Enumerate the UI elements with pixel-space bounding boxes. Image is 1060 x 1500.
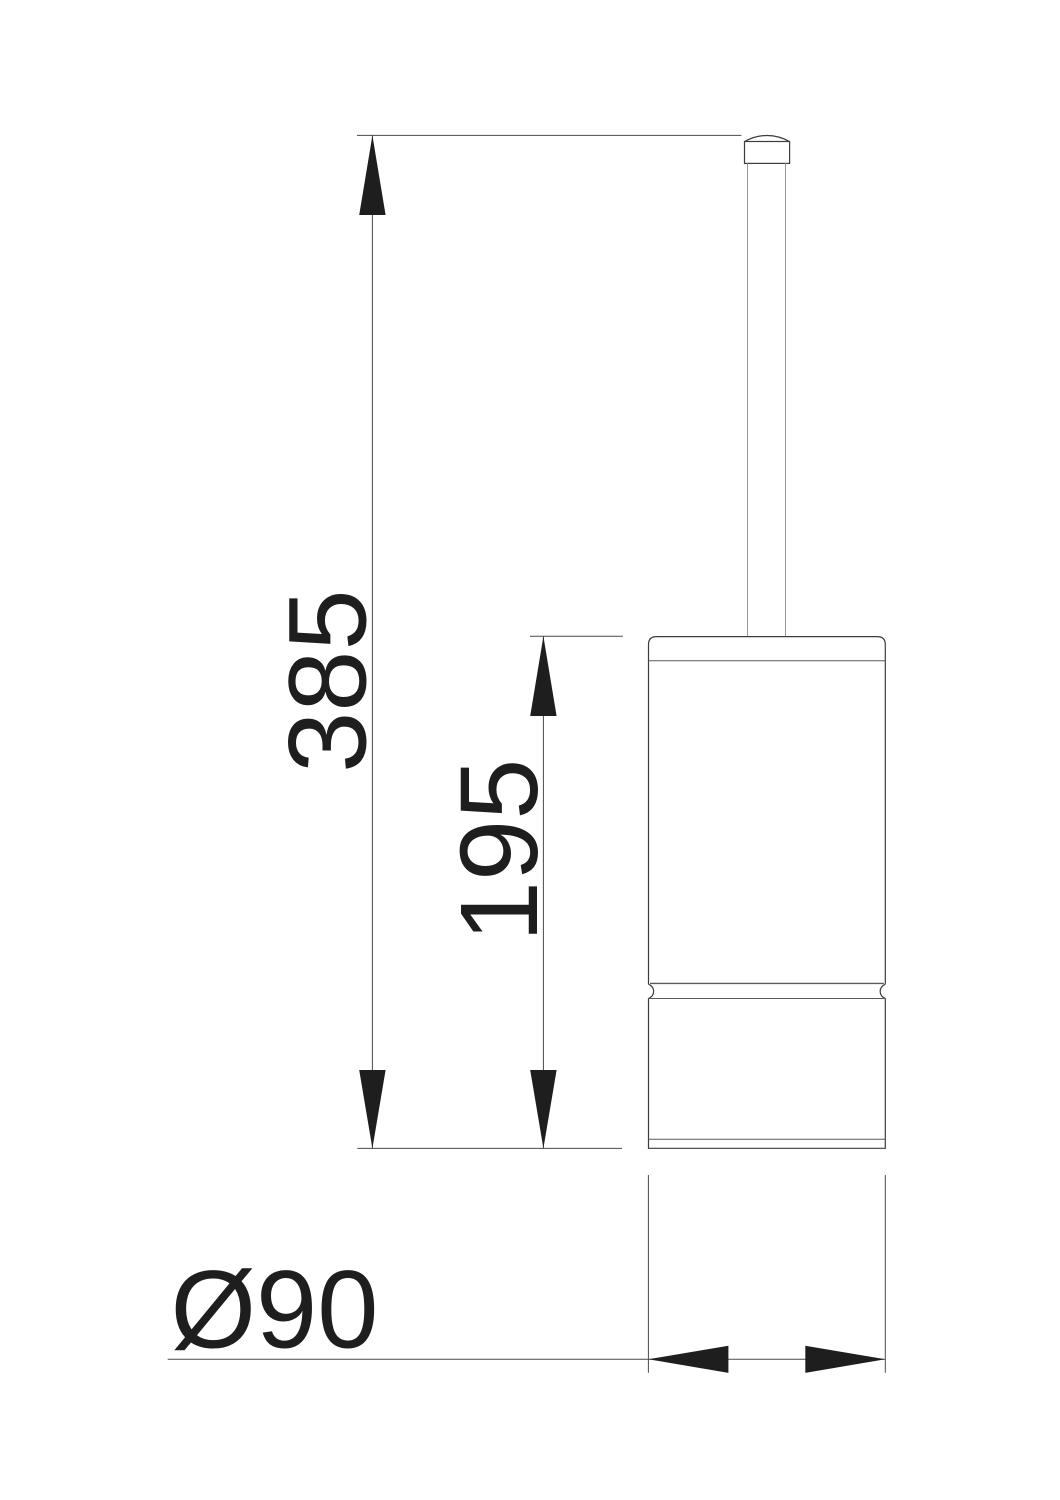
svg-text:385: 385 — [266, 589, 389, 773]
svg-text:195: 195 — [438, 759, 561, 943]
svg-text:Ø90: Ø90 — [171, 1249, 379, 1372]
